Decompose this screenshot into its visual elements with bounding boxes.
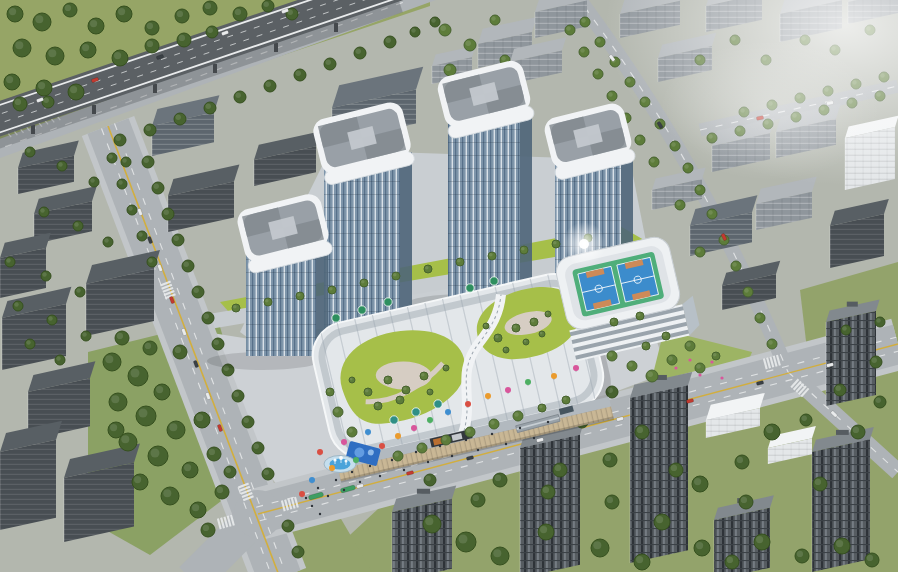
tree-highlight <box>768 340 773 345</box>
pedestrian <box>335 479 337 481</box>
tree-highlight <box>421 373 425 377</box>
balloon-decoration <box>317 449 323 455</box>
tree-highlight <box>297 293 301 297</box>
tree-highlight <box>671 142 676 147</box>
tree-highlight <box>131 369 140 378</box>
context-building <box>64 444 140 542</box>
tree-highlight <box>425 266 429 270</box>
tree-highlight <box>686 342 691 347</box>
tree-highlight <box>236 93 241 98</box>
tree-highlight <box>329 287 333 291</box>
tree-highlight <box>566 26 571 31</box>
tree-highlight <box>676 201 681 206</box>
tree-highlight <box>145 343 151 349</box>
tree-highlight <box>824 87 829 92</box>
tree-highlight <box>553 241 557 245</box>
tree-highlight <box>6 258 11 263</box>
tree-highlight <box>708 210 713 215</box>
tree-highlight <box>820 106 825 111</box>
pedestrian <box>533 437 535 439</box>
tree-highlight <box>82 332 87 337</box>
tree-highlight <box>264 470 269 475</box>
tree-highlight <box>110 424 117 431</box>
tree-highlight <box>214 340 219 345</box>
tree-highlight <box>179 35 185 41</box>
tree-highlight <box>192 504 199 511</box>
tree-highlight <box>442 436 447 441</box>
tree-highlight <box>184 464 191 471</box>
highway-pier <box>274 43 278 52</box>
balloon-decoration <box>427 417 433 423</box>
tree-highlight <box>108 154 113 159</box>
tree-highlight <box>146 126 151 131</box>
tree-highlight <box>611 319 615 323</box>
tree-highlight <box>491 16 496 21</box>
flower-bed <box>710 360 713 363</box>
tree-highlight <box>82 44 89 51</box>
canopy-umbrella <box>332 314 340 322</box>
tree-highlight <box>58 162 63 167</box>
tree-highlight <box>265 299 269 303</box>
tree-highlight <box>540 332 543 335</box>
penthouse <box>847 302 858 307</box>
tree-highlight <box>596 38 601 43</box>
tree-highlight <box>15 41 23 49</box>
tree-highlight <box>163 489 171 497</box>
tree-highlight <box>90 178 95 183</box>
tree-highlight <box>663 333 667 337</box>
highway-pier <box>153 84 157 93</box>
tree-highlight <box>736 127 741 132</box>
tree-highlight <box>327 389 331 393</box>
tree-highlight <box>65 5 71 11</box>
tree-highlight <box>696 542 703 549</box>
tree-highlight <box>473 495 479 501</box>
tree-highlight <box>148 258 153 263</box>
balloon-decoration <box>341 439 347 445</box>
tree-highlight <box>490 420 495 425</box>
tree-highlight <box>713 353 717 357</box>
tree-highlight <box>531 319 535 323</box>
tree-highlight <box>815 479 821 485</box>
canopy-umbrella <box>434 400 442 408</box>
balloon-decoration <box>525 379 531 385</box>
tree-highlight <box>74 222 79 227</box>
facade <box>520 435 580 572</box>
tree-highlight <box>144 158 149 163</box>
tree-highlight <box>524 340 527 343</box>
tree-highlight <box>428 390 431 393</box>
balloon-decoration <box>465 401 471 407</box>
highway-pier <box>213 64 217 73</box>
tree-highlight <box>122 158 127 163</box>
tree-highlight <box>766 426 773 433</box>
tree-highlight <box>26 340 31 345</box>
tree-highlight <box>581 18 586 23</box>
tree-highlight <box>696 56 701 61</box>
tree-highlight <box>866 26 871 31</box>
tree-highlight <box>504 348 507 351</box>
tree-highlight <box>594 70 599 75</box>
tree-highlight <box>648 372 653 377</box>
canopy-umbrella <box>466 284 474 292</box>
tree-highlight <box>744 288 749 293</box>
tree-highlight <box>350 378 353 381</box>
tree-highlight <box>459 535 468 544</box>
tree-highlight <box>118 180 123 185</box>
balloon-decoration <box>573 365 579 371</box>
context-building <box>845 116 898 190</box>
tree-highlight <box>111 395 119 403</box>
tree-highlight <box>867 555 873 561</box>
tree-highlight <box>138 232 143 237</box>
tree-highlight <box>418 444 423 449</box>
tree-highlight <box>563 397 567 401</box>
tree-highlight <box>334 408 339 413</box>
tree-highlight <box>15 99 21 105</box>
tree-highlight <box>139 409 148 418</box>
tree-highlight <box>731 36 736 41</box>
pedestrian <box>359 481 361 483</box>
pedestrian <box>317 487 319 489</box>
tree-highlight <box>204 314 209 319</box>
tree-highlight <box>696 248 701 253</box>
tree-highlight <box>628 362 633 367</box>
tree-highlight <box>546 312 549 315</box>
tree-highlight <box>656 516 663 523</box>
tree-highlight <box>792 113 797 118</box>
pedestrian <box>547 421 549 423</box>
canopy-umbrella <box>390 416 398 424</box>
canopy-umbrella <box>490 277 498 285</box>
tree-highlight <box>848 99 853 104</box>
tree-highlight <box>880 73 885 78</box>
tree-highlight <box>872 358 877 363</box>
tree-highlight <box>741 497 747 503</box>
canopy-umbrella <box>358 306 366 314</box>
tree-highlight <box>154 184 159 189</box>
tree-highlight <box>116 136 121 141</box>
tree-highlight <box>174 236 179 241</box>
pedestrian <box>403 469 405 471</box>
tree-highlight <box>539 405 543 409</box>
highway-pier <box>92 105 96 114</box>
tree-highlight <box>444 366 447 369</box>
tree-highlight <box>555 465 561 471</box>
tree-highlight <box>876 398 881 403</box>
tree-highlight <box>495 335 499 339</box>
tree-highlight <box>365 389 369 393</box>
tree-highlight <box>836 540 843 547</box>
tree-highlight <box>194 288 199 293</box>
tree-highlight <box>521 247 525 251</box>
pedestrian <box>343 489 345 491</box>
tree-highlight <box>457 259 461 263</box>
tree-highlight <box>117 333 123 339</box>
tree-highlight <box>626 78 631 83</box>
tree-highlight <box>284 522 289 527</box>
balloon-decoration <box>505 387 511 393</box>
tree-highlight <box>104 238 109 243</box>
pedestrian <box>319 513 321 515</box>
tree-highlight <box>356 49 361 54</box>
tree-highlight <box>836 386 841 391</box>
tree-highlight <box>636 556 643 563</box>
tree-highlight <box>756 314 761 319</box>
tree-highlight <box>326 60 331 65</box>
tree-highlight <box>802 416 807 421</box>
tree-highlight <box>636 136 641 141</box>
tree-highlight <box>411 28 416 33</box>
tree-highlight <box>48 49 56 57</box>
tree-highlight <box>48 316 53 321</box>
tree-highlight <box>831 46 836 51</box>
tree-highlight <box>501 56 506 61</box>
tree-highlight <box>147 23 153 29</box>
tree-highlight <box>853 427 859 433</box>
tree-highlight <box>233 305 237 309</box>
balloon-decoration <box>445 409 451 415</box>
tree-highlight <box>203 525 209 531</box>
tree-highlight <box>14 302 19 307</box>
tree-highlight <box>426 476 431 481</box>
tree-highlight <box>543 487 549 493</box>
tree-highlight <box>684 164 689 169</box>
tree-highlight <box>294 548 299 553</box>
tree-highlight <box>495 475 501 481</box>
flower-bed <box>688 358 691 361</box>
pedestrian <box>369 465 371 467</box>
tree-highlight <box>514 412 519 417</box>
tree-highlight <box>385 377 389 381</box>
tree-highlight <box>694 478 701 485</box>
tree-highlight <box>151 449 160 458</box>
penthouse <box>836 430 849 435</box>
tree-highlight <box>740 108 745 113</box>
highway-pier <box>334 23 338 32</box>
tree-highlight <box>375 403 379 407</box>
balloon-decoration <box>299 491 305 497</box>
tree-highlight <box>177 11 183 17</box>
pedestrian <box>439 445 441 447</box>
highway-pier <box>31 125 35 134</box>
tree-highlight <box>484 324 487 327</box>
tree-highlight <box>608 92 613 97</box>
tree-highlight <box>386 38 391 43</box>
pedestrian <box>379 475 381 477</box>
tree-highlight <box>732 262 737 267</box>
tree-highlight <box>637 427 643 433</box>
facade <box>0 440 56 530</box>
tree-highlight <box>184 262 189 267</box>
pedestrian <box>351 471 353 473</box>
tree-highlight <box>40 208 45 213</box>
tree-highlight <box>6 76 13 83</box>
facade <box>845 127 895 190</box>
tree-highlight <box>605 455 611 461</box>
facade <box>826 311 876 406</box>
pedestrian <box>311 505 313 507</box>
balloon-decoration <box>309 477 315 483</box>
tree-highlight <box>205 3 211 9</box>
tree-highlight <box>361 280 365 284</box>
tree-highlight <box>156 386 163 393</box>
tree-highlight <box>393 273 397 277</box>
pedestrian <box>327 495 329 497</box>
tree-highlight <box>797 551 803 557</box>
tree-highlight <box>348 428 353 433</box>
tree-highlight <box>876 92 881 97</box>
tree-highlight <box>466 428 471 433</box>
flower-bed <box>674 366 677 369</box>
tree-highlight <box>164 210 169 215</box>
pedestrian <box>427 461 429 463</box>
tree-highlight <box>852 80 857 85</box>
tree-highlight <box>244 418 249 423</box>
tree-highlight <box>668 356 673 361</box>
tree-highlight <box>768 101 773 106</box>
tree-highlight <box>208 28 213 33</box>
tree-highlight <box>607 497 613 503</box>
tree-highlight <box>234 392 239 397</box>
tree-highlight <box>696 186 701 191</box>
tree-highlight <box>134 476 141 483</box>
tree-highlight <box>44 98 49 103</box>
tree-highlight <box>671 465 677 471</box>
canopy-umbrella <box>412 408 420 416</box>
tree-highlight <box>580 48 585 53</box>
tree-highlight <box>489 253 493 257</box>
balloon-decoration <box>551 373 557 379</box>
tree-highlight <box>264 1 269 6</box>
canopy-umbrella <box>384 298 392 306</box>
tree-highlight <box>42 272 47 277</box>
tree-highlight <box>764 120 769 125</box>
balloon-decoration <box>411 425 417 431</box>
tree-highlight <box>842 326 847 331</box>
pedestrian <box>477 449 479 451</box>
tree-highlight <box>70 86 77 93</box>
context-building <box>0 421 62 530</box>
tree-highlight <box>650 158 655 163</box>
tree-highlight <box>466 41 471 46</box>
tree-highlight <box>441 26 446 31</box>
tree-highlight <box>209 449 215 455</box>
tree-highlight <box>737 457 743 463</box>
tree-highlight <box>446 66 451 71</box>
tree-highlight <box>756 536 763 543</box>
tree-highlight <box>425 517 433 525</box>
flower-bed <box>720 376 723 379</box>
pedestrian <box>415 451 417 453</box>
pedestrian <box>505 443 507 445</box>
fountain-plaza <box>324 456 356 473</box>
tree-highlight <box>641 98 646 103</box>
tree-highlight <box>708 134 713 139</box>
flower-bed <box>698 373 701 376</box>
pedestrian <box>451 455 453 457</box>
tree-highlight <box>105 355 113 363</box>
tree-highlight <box>38 82 45 89</box>
tree-highlight <box>266 82 271 87</box>
tree-highlight <box>593 541 601 549</box>
tree-highlight <box>397 397 401 401</box>
tower-side <box>520 108 532 298</box>
tree-highlight <box>226 468 231 473</box>
pedestrian <box>391 459 393 461</box>
tree-highlight <box>403 387 407 391</box>
tree-highlight <box>493 549 501 557</box>
tree-highlight <box>876 318 881 323</box>
tree-highlight <box>9 8 16 15</box>
tree-highlight <box>762 56 767 61</box>
tree-highlight <box>128 206 133 211</box>
tree-highlight <box>114 52 121 59</box>
tree-highlight <box>235 9 241 15</box>
balloon-decoration <box>485 393 491 399</box>
tree-highlight <box>147 41 153 47</box>
tree-highlight <box>431 18 436 23</box>
tree-highlight <box>175 347 181 353</box>
balloon-decoration <box>379 443 385 449</box>
tower-side <box>400 152 412 332</box>
tree-highlight <box>696 364 701 369</box>
tree-highlight <box>176 115 181 120</box>
tree-highlight <box>254 444 259 449</box>
pedestrian <box>519 427 521 429</box>
tree-highlight <box>727 557 733 563</box>
penthouse <box>417 489 430 494</box>
tree-highlight <box>26 148 31 153</box>
pedestrian <box>305 497 307 499</box>
tree-highlight <box>585 235 589 239</box>
tree-highlight <box>796 94 801 99</box>
tree-highlight <box>90 20 97 27</box>
tree-highlight <box>196 414 203 421</box>
balloon-decoration <box>329 465 335 471</box>
tree-highlight <box>76 288 81 293</box>
tree-highlight <box>217 487 223 493</box>
tree-highlight <box>118 8 125 15</box>
tree-highlight <box>35 15 43 23</box>
balloon-decoration <box>365 429 371 435</box>
pedestrian <box>491 433 493 435</box>
pedestrian <box>465 439 467 441</box>
tree-highlight <box>394 452 399 457</box>
tree-highlight <box>801 36 806 41</box>
tree-highlight <box>637 313 641 317</box>
tree-highlight <box>513 325 517 329</box>
tree-highlight <box>121 435 129 443</box>
balloon-decoration <box>395 433 401 439</box>
tree-highlight <box>643 343 647 347</box>
scene-canvas <box>0 0 898 572</box>
tree-highlight <box>56 356 61 361</box>
tree-highlight <box>169 423 177 431</box>
tree-highlight <box>296 71 301 76</box>
aerial-render <box>0 0 898 572</box>
tree-highlight <box>608 352 613 357</box>
balloon-decoration <box>353 457 359 463</box>
tree-highlight <box>206 104 211 109</box>
tree-highlight <box>540 526 547 533</box>
